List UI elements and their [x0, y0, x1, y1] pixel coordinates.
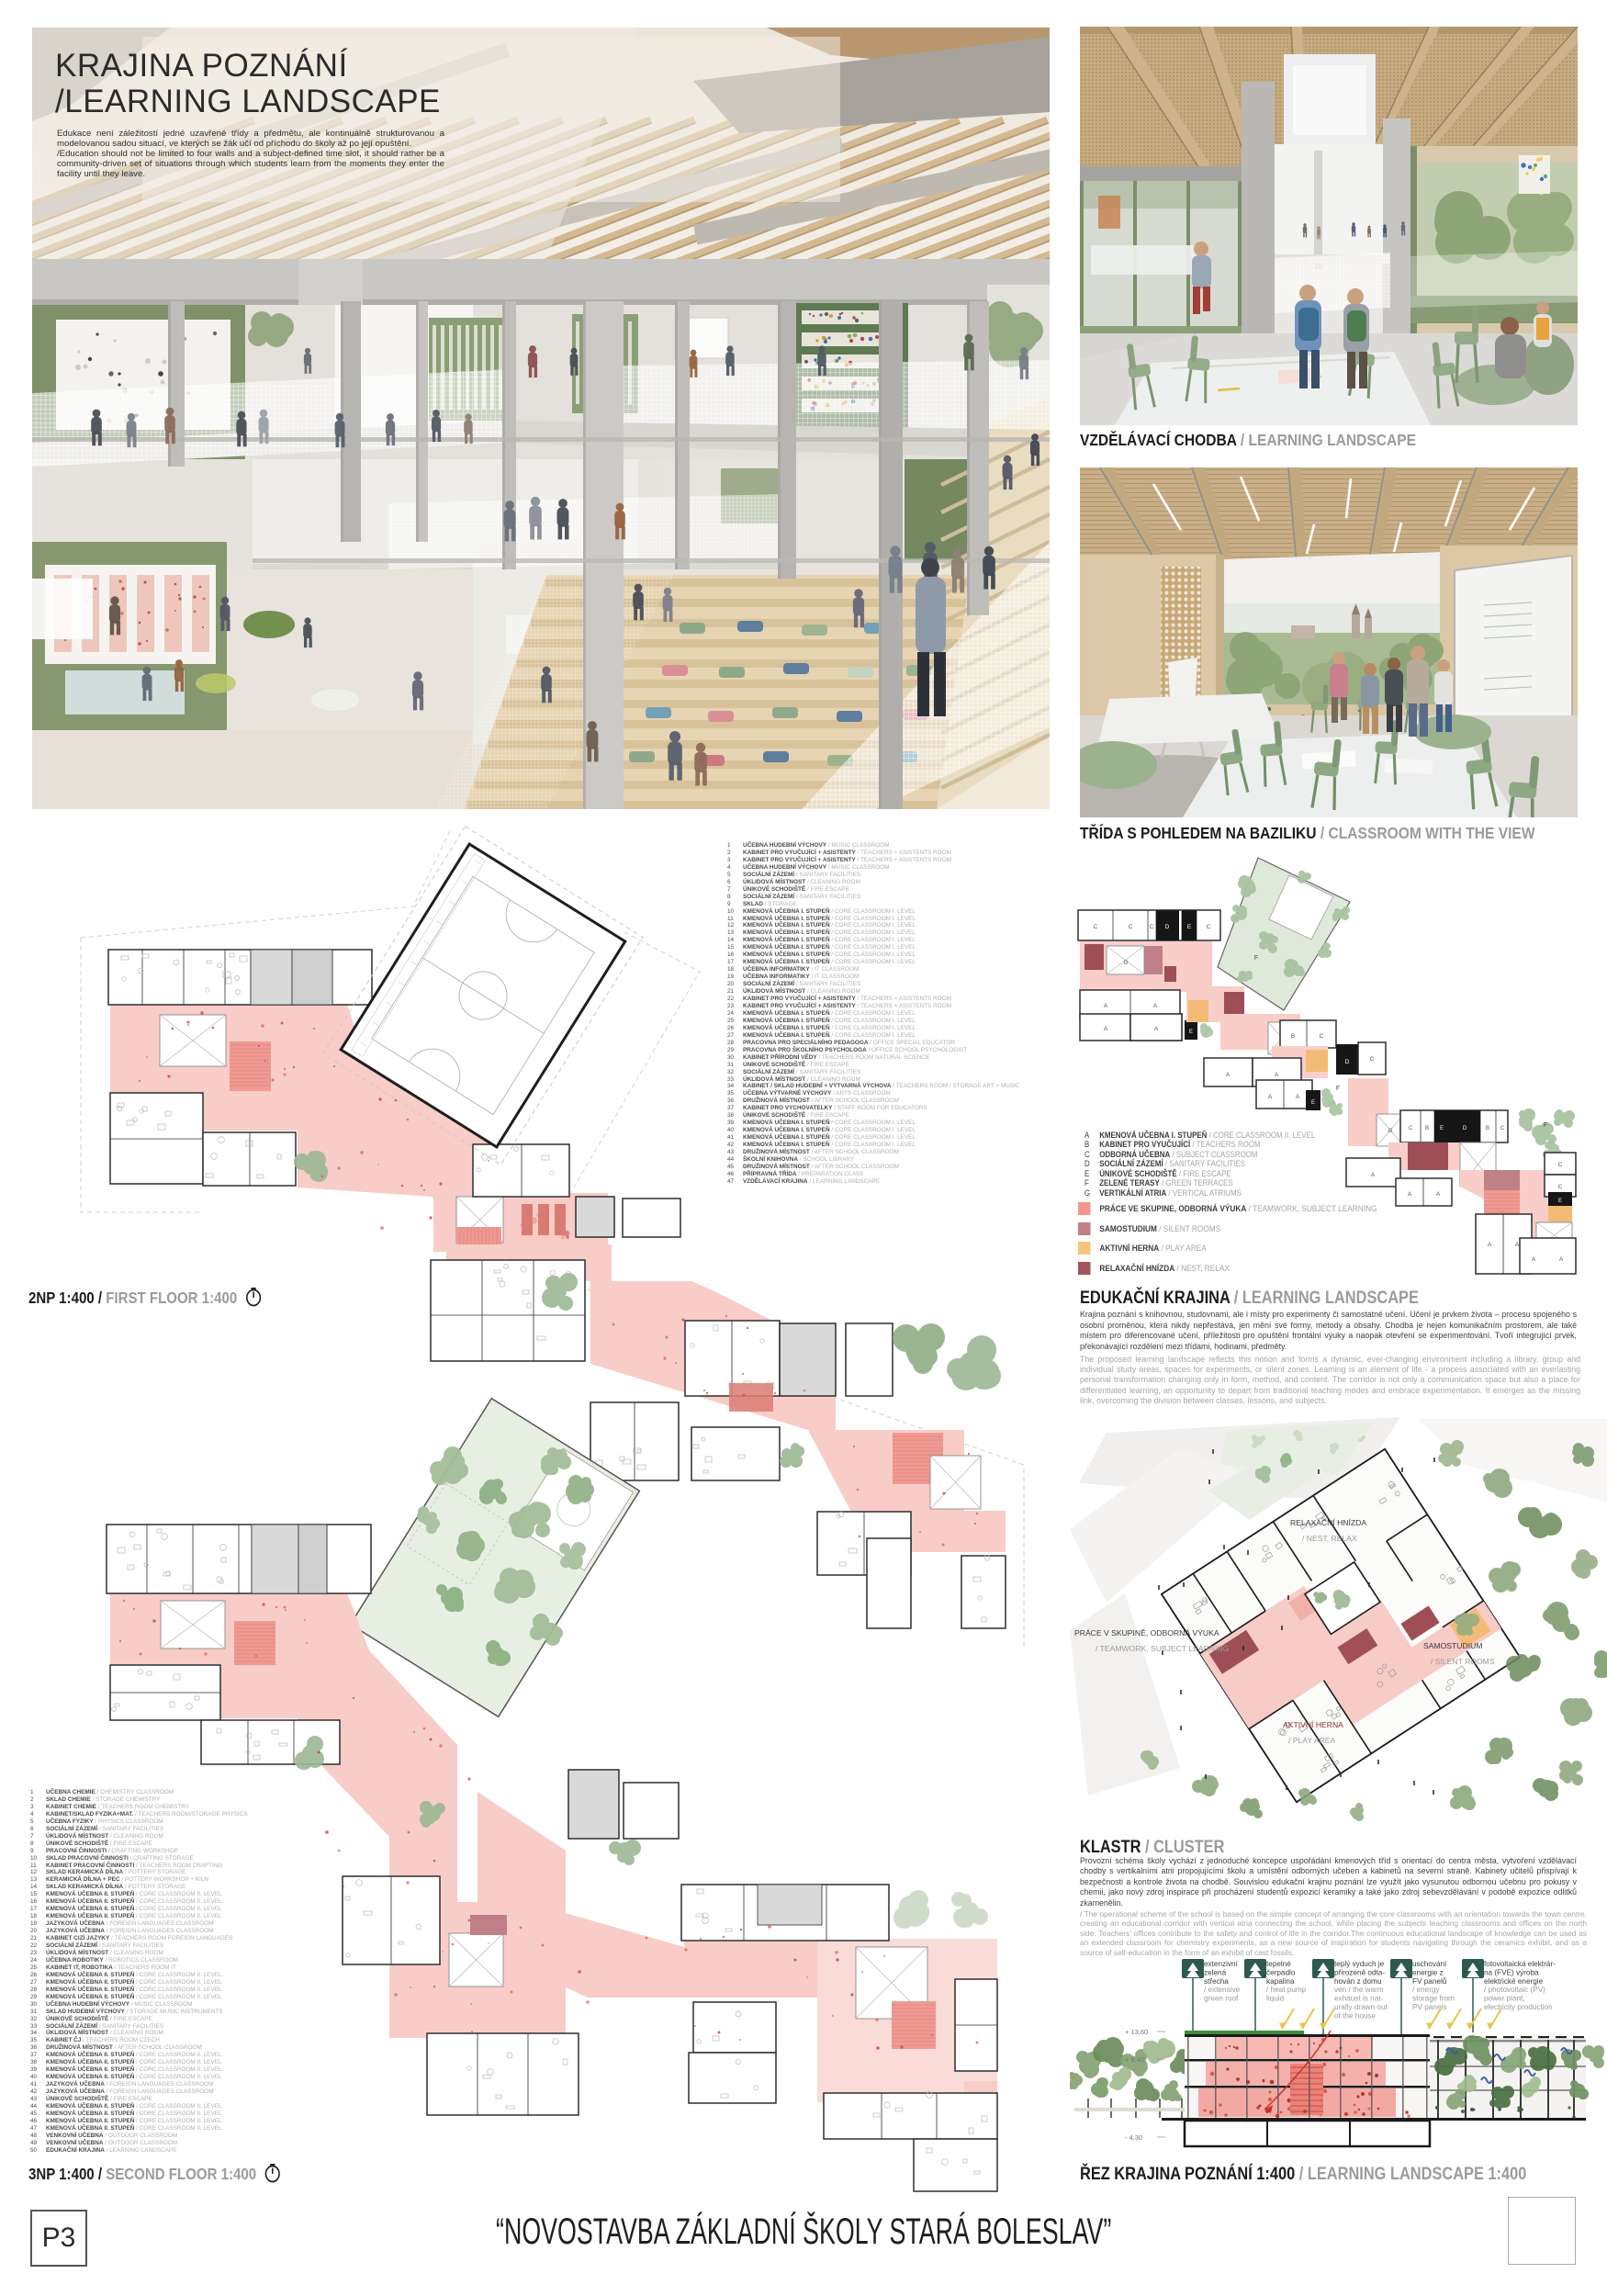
svg-text:E: E — [1311, 1100, 1315, 1106]
svg-text:ven / the warm: ven / the warm — [1334, 1986, 1384, 1994]
svg-text:A: A — [1226, 1072, 1231, 1078]
svg-text:uschování: uschování — [1412, 1960, 1447, 1968]
svg-text:zelená: zelená — [1204, 1968, 1227, 1976]
svg-text:B: B — [1486, 1126, 1489, 1131]
svg-text:elektrické energie: elektrické energie — [1484, 1977, 1544, 1986]
svg-text:C: C — [1558, 1162, 1563, 1168]
svg-text:teplý vyduch je: teplý vyduch je — [1334, 1960, 1385, 1968]
svg-text:D: D — [1165, 924, 1170, 930]
svg-text:C: C — [1370, 1056, 1375, 1063]
svg-text:C: C — [1558, 1184, 1563, 1190]
svg-text:A: A — [1154, 1026, 1159, 1032]
svg-text:energie z: energie z — [1412, 1968, 1444, 1976]
svg-text:F: F — [1336, 1086, 1340, 1092]
svg-text:FV panelů: FV panelů — [1412, 1976, 1447, 1986]
svg-text:A: A — [1296, 1094, 1300, 1100]
svg-text:G: G — [1123, 960, 1128, 966]
svg-text:kapalina: kapalina — [1266, 1977, 1295, 1986]
svg-text:F: F — [1254, 955, 1258, 962]
svg-text:C: C — [1094, 924, 1098, 930]
svg-text:/ TEAMWORK, SUBJECT LEARNING: / TEAMWORK, SUBJECT LEARNING — [1096, 1644, 1230, 1653]
svg-text:A: A — [1488, 1242, 1492, 1248]
svg-text:of the house: of the house — [1334, 2011, 1377, 2020]
svg-text:A: A — [1559, 1256, 1564, 1263]
svg-text:/ SILENT ROOMS: / SILENT ROOMS — [1431, 1657, 1495, 1666]
svg-text:E: E — [1558, 1199, 1562, 1204]
svg-text:+ 13,60: + 13,60 — [1125, 2028, 1148, 2036]
svg-text:C: C — [1320, 1033, 1324, 1040]
svg-text:E: E — [1187, 924, 1192, 930]
svg-text:D: D — [1463, 1126, 1467, 1131]
svg-text:PRÁCE V SKUPINĚ, ODBORNÁ VÝUKA: PRÁCE V SKUPINĚ, ODBORNÁ VÝUKA — [1074, 1628, 1219, 1638]
svg-text:+ 9,40: + 9,40 — [1125, 2055, 1144, 2064]
svg-text:F: F — [1544, 1122, 1547, 1129]
svg-text:/ energy: / energy — [1412, 1986, 1440, 1994]
svg-text:A: A — [1436, 1191, 1441, 1198]
svg-text:přirozeně odta-: přirozeně odta- — [1334, 1968, 1385, 1976]
svg-text:A: A — [1515, 1242, 1520, 1248]
svg-text:hován z domu: hován z domu — [1334, 1977, 1382, 1986]
svg-text:E: E — [1189, 1030, 1193, 1035]
svg-text:/ heat pump: / heat pump — [1266, 1986, 1307, 1994]
svg-text:čerpadlo: čerpadlo — [1266, 1968, 1296, 1976]
svg-text:PV panels: PV panels — [1412, 2003, 1446, 2011]
svg-text:C: C — [1500, 1126, 1505, 1131]
svg-text:A: A — [1104, 1026, 1108, 1032]
svg-text:A: A — [1104, 1003, 1108, 1009]
svg-text:A: A — [1371, 1172, 1376, 1178]
svg-text:G: G — [1388, 1128, 1392, 1134]
svg-text:D: D — [1345, 1059, 1350, 1065]
svg-text:A: A — [1153, 1003, 1158, 1009]
svg-text:A: A — [1408, 1191, 1412, 1198]
svg-text:B: B — [1291, 1033, 1295, 1040]
svg-text:A: A — [1275, 1072, 1279, 1078]
svg-text:/ PLAY AREA: / PLAY AREA — [1288, 1736, 1336, 1745]
svg-text:E: E — [1440, 1126, 1444, 1131]
svg-text:green roof: green roof — [1204, 1995, 1239, 2003]
svg-text:RELAXAČNÍ HNÍZDA: RELAXAČNÍ HNÍZDA — [1290, 1518, 1366, 1527]
svg-text:urally drawn out: urally drawn out — [1334, 2003, 1388, 2011]
svg-text:C: C — [1129, 924, 1133, 930]
svg-text:power plant,: power plant, — [1484, 1995, 1525, 2003]
svg-text:střecha: střecha — [1204, 1977, 1229, 1986]
svg-text:C: C — [1207, 924, 1211, 930]
svg-text:extenzivní: extenzivní — [1204, 1960, 1239, 1968]
svg-text:- 4,30: - 4,30 — [1125, 2133, 1142, 2142]
svg-text:tepelné: tepelné — [1266, 1960, 1291, 1968]
svg-text:AKTIVNÍ HERNA: AKTIVNÍ HERNA — [1283, 1720, 1343, 1729]
svg-text:/ NEST, RELAX: / NEST, RELAX — [1302, 1534, 1357, 1543]
svg-text:/ photovoltaic (PV): / photovoltaic (PV) — [1484, 1986, 1545, 1994]
svg-text:C: C — [1409, 1126, 1413, 1131]
svg-text:B: B — [1425, 1126, 1429, 1131]
svg-text:/ extensive: / extensive — [1204, 1986, 1241, 1994]
svg-text:A: A — [1268, 1094, 1273, 1100]
svg-text:C: C — [1150, 924, 1154, 930]
svg-text:A: A — [1532, 1256, 1536, 1263]
svg-text:storage from: storage from — [1412, 1995, 1455, 2003]
svg-text:liquid: liquid — [1266, 1995, 1285, 2003]
svg-text:na (FVE) výroba: na (FVE) výroba — [1484, 1968, 1539, 1976]
svg-text:fotovoltaická elektrár-: fotovoltaická elektrár- — [1484, 1960, 1556, 1968]
svg-text:electricity production: electricity production — [1484, 2003, 1553, 2011]
svg-text:exhaust is nat-: exhaust is nat- — [1334, 1995, 1384, 2003]
svg-text:SAMOSTUDIUM: SAMOSTUDIUM — [1423, 1641, 1482, 1650]
